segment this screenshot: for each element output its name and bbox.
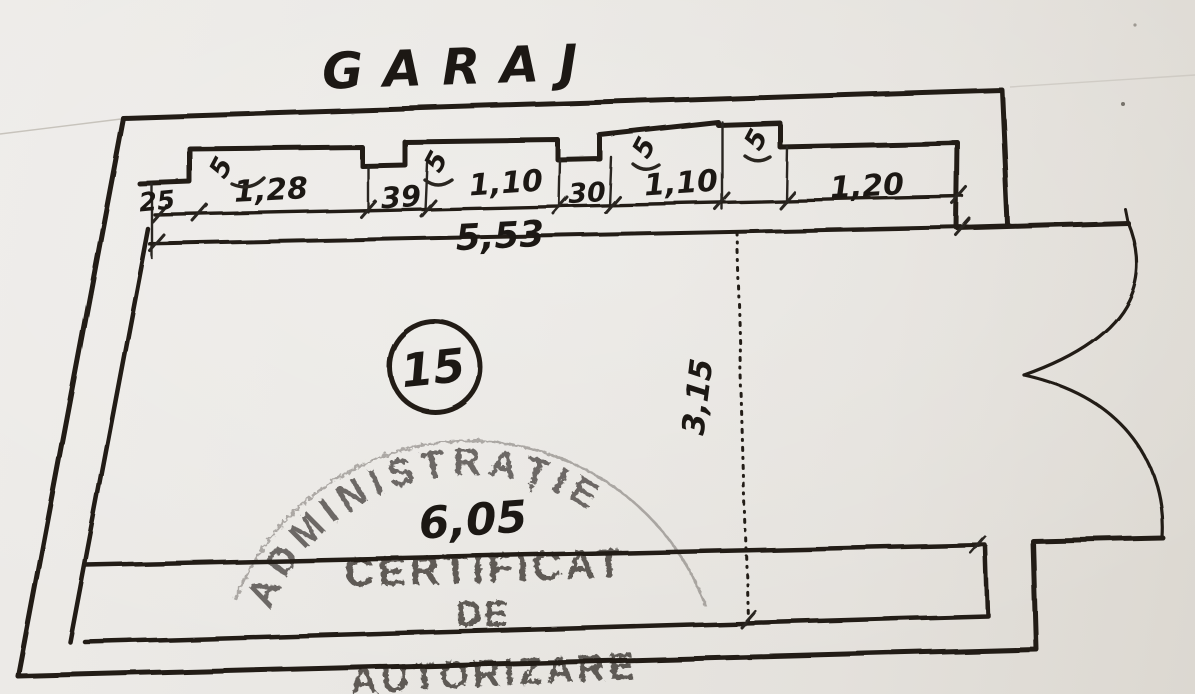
door-swing-arc-bottom	[1024, 375, 1162, 537]
paper-speck	[1121, 102, 1125, 106]
crease-line	[1010, 75, 1195, 87]
crease-line	[0, 119, 121, 134]
pilaster-mark-5-c: 5	[626, 132, 662, 163]
dim-25: 25	[138, 185, 177, 218]
pilaster-mark-5-b: 5	[418, 146, 454, 177]
plan-title: GARAJ	[321, 33, 598, 101]
dim-1-20: 1,20	[829, 167, 905, 206]
wall-outer-left	[18, 118, 123, 676]
pilaster-swash	[633, 164, 659, 169]
dimension-line-total	[150, 227, 968, 244]
axis-dashed-line	[737, 232, 748, 620]
stamp-line-certificat: CERTIFICAT	[344, 540, 626, 596]
pilaster-mark-5-d: 5	[738, 124, 774, 155]
dim-bottom-6-05: 6,05	[417, 491, 529, 549]
floor-plan-svg: ADMINISTRAȚIE CERTIFICAT DE AUTORIZARE	[0, 0, 1195, 694]
scanned-floor-plan-paper: ADMINISTRAȚIE CERTIFICAT DE AUTORIZARE	[0, 0, 1195, 694]
door-swing-arc-top	[1024, 222, 1137, 375]
room-number: 15	[398, 338, 467, 398]
paper-speck	[1133, 23, 1136, 26]
dim-1-10-b: 1,10	[643, 163, 719, 203]
dim-39: 39	[380, 179, 423, 216]
dim-1-28: 1,28	[233, 171, 309, 210]
dim-depth-3-15: 3,15	[676, 357, 721, 437]
stamp-line-autorizare: AUTORIZARE	[349, 645, 639, 694]
stamp: ADMINISTRAȚIE CERTIFICAT DE AUTORIZARE	[235, 441, 706, 694]
dim-30: 30	[567, 177, 606, 210]
dim-1-10-a: 1,10	[468, 163, 544, 203]
dim-total-5-53: 5,53	[455, 214, 546, 260]
pilaster-swash	[745, 156, 770, 161]
wall-inner-left	[70, 229, 148, 642]
pilaster-swash	[425, 180, 452, 185]
